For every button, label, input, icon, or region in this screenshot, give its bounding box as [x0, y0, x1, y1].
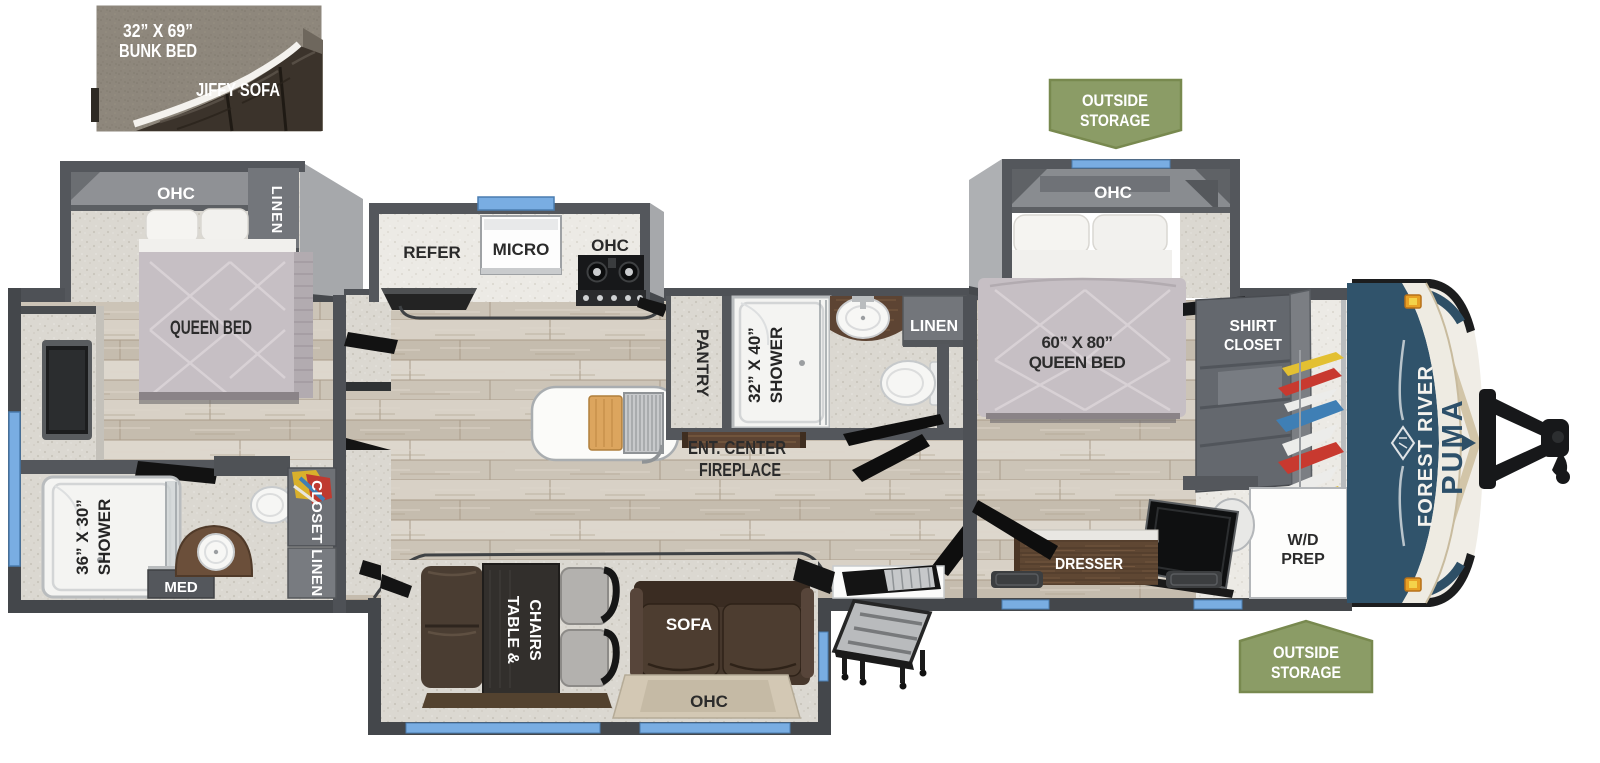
- svg-text:STORAGE: STORAGE: [1080, 111, 1150, 130]
- svg-text:STORAGE: STORAGE: [1271, 663, 1341, 682]
- svg-text:TABLE &: TABLE &: [504, 596, 521, 665]
- svg-text:32” X 40”: 32” X 40”: [745, 327, 764, 403]
- svg-text:OHC: OHC: [690, 692, 728, 711]
- svg-text:LINEN: LINEN: [268, 186, 284, 235]
- svg-text:SHOWER: SHOWER: [767, 327, 786, 404]
- svg-text:FIREPLACE: FIREPLACE: [699, 460, 781, 480]
- svg-text:LINEN: LINEN: [910, 318, 958, 335]
- svg-text:SHIRT: SHIRT: [1230, 318, 1277, 335]
- svg-text:W/D: W/D: [1287, 532, 1318, 549]
- svg-text:MICRO: MICRO: [493, 240, 550, 259]
- svg-text:LINEN: LINEN: [308, 549, 325, 597]
- svg-text:CLOSET: CLOSET: [1224, 337, 1282, 354]
- svg-text:REFER: REFER: [403, 243, 461, 262]
- svg-text:MED: MED: [164, 579, 198, 596]
- svg-text:JIFFY SOFA: JIFFY SOFA: [196, 80, 280, 100]
- svg-text:32” X 69”: 32” X 69”: [123, 21, 193, 41]
- svg-text:OUTSIDE: OUTSIDE: [1273, 643, 1339, 662]
- svg-text:CHAIRS: CHAIRS: [526, 599, 543, 661]
- svg-text:OHC: OHC: [157, 184, 195, 203]
- svg-text:ENT. CENTER: ENT. CENTER: [688, 438, 786, 458]
- svg-text:PANTRY: PANTRY: [693, 329, 712, 398]
- svg-text:SHOWER: SHOWER: [95, 499, 114, 576]
- svg-text:PREP: PREP: [1281, 551, 1325, 568]
- svg-text:36” X 30”: 36” X 30”: [73, 499, 92, 575]
- svg-text:QUEEN BED: QUEEN BED: [170, 318, 252, 339]
- svg-text:PUMA: PUMA: [1437, 397, 1469, 494]
- svg-text:OHC: OHC: [591, 236, 629, 255]
- svg-text:OHC: OHC: [1094, 183, 1132, 202]
- svg-text:OUTSIDE: OUTSIDE: [1082, 91, 1148, 110]
- svg-text:60” X 80”: 60” X 80”: [1041, 333, 1112, 352]
- svg-text:FOREST RIVER: FOREST RIVER: [1415, 365, 1437, 527]
- svg-text:SOFA: SOFA: [666, 615, 712, 634]
- svg-text:CLOSET: CLOSET: [308, 480, 325, 544]
- svg-text:QUEEN BED: QUEEN BED: [1029, 353, 1126, 372]
- svg-text:BUNK BED: BUNK BED: [119, 41, 197, 61]
- svg-text:DRESSER: DRESSER: [1055, 556, 1123, 573]
